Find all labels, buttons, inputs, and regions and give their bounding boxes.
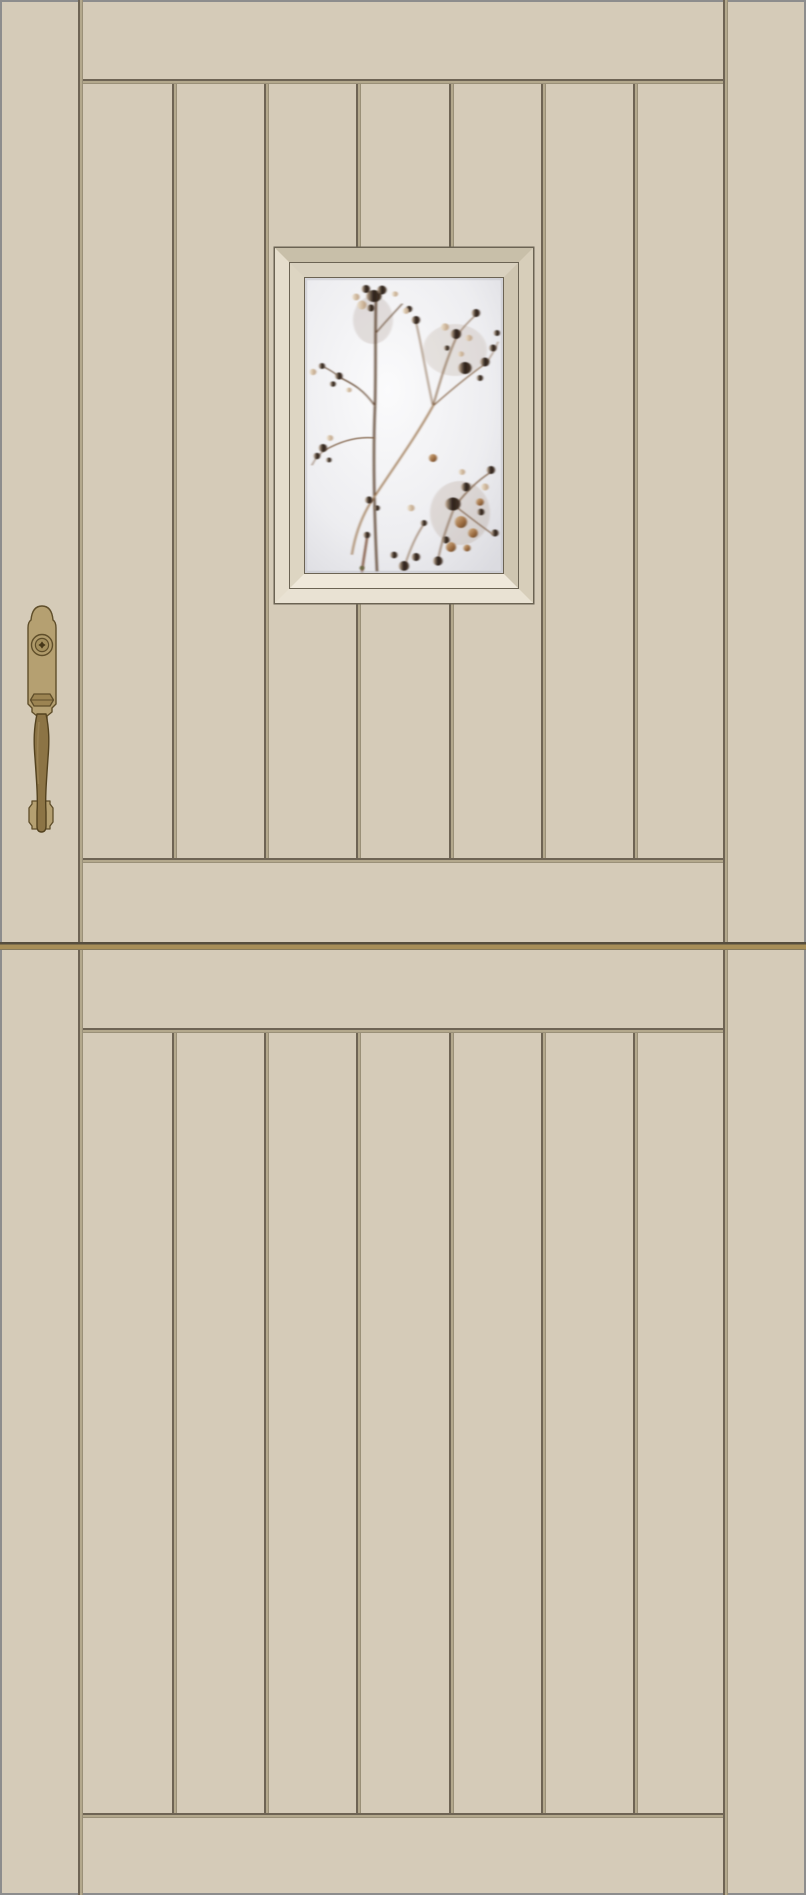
- dutch-door-split-gap: [0, 942, 806, 951]
- window-lite: [275, 248, 533, 603]
- window-glass: [305, 278, 503, 573]
- plank-groove: [264, 1033, 269, 1813]
- plank-groove: [633, 1033, 638, 1813]
- door: [0, 0, 806, 1895]
- rail-groove-bottom: [83, 1813, 723, 1818]
- rail-groove-top: [83, 79, 723, 84]
- plank-groove: [264, 84, 269, 858]
- plank-groove: [356, 84, 361, 248]
- rail-groove-lock: [83, 858, 723, 863]
- plank-groove: [449, 1033, 454, 1813]
- window-frame-inner: [290, 263, 518, 588]
- rail-groove-lower-top: [83, 1028, 723, 1033]
- plank-groove: [541, 84, 546, 858]
- thumb-latch[interactable]: [31, 694, 54, 706]
- entry-handleset[interactable]: [20, 600, 68, 845]
- plank-groove: [356, 1033, 361, 1813]
- plank-groove: [172, 84, 177, 858]
- plank-groove: [449, 603, 454, 858]
- plank-groove: [172, 1033, 177, 1813]
- handle-grip[interactable]: [34, 714, 49, 832]
- plank-groove: [356, 603, 361, 858]
- plank-groove: [541, 1033, 546, 1813]
- plank-groove: [449, 84, 454, 248]
- plank-groove: [633, 84, 638, 858]
- botanical-art: [305, 278, 503, 573]
- window-frame-outer: [275, 248, 533, 603]
